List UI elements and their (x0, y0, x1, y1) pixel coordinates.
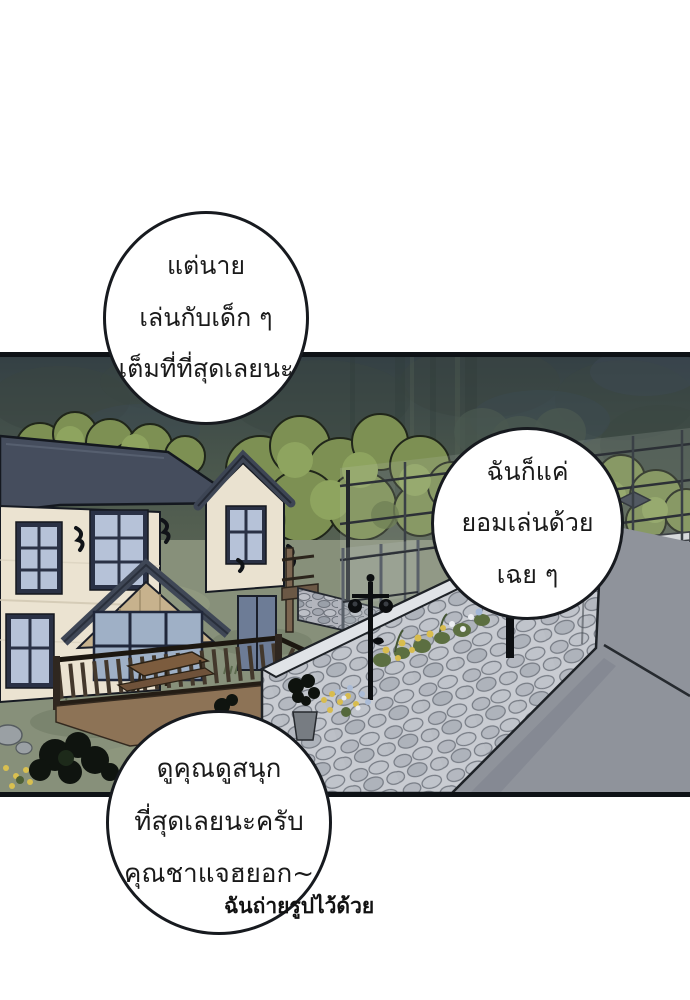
panel-border-bottom (0, 792, 690, 797)
bubble-line: คุณชาแจฮยอก~ (124, 858, 314, 892)
bubble-line: ฉันก็แค่ (486, 456, 568, 489)
bubble-line: เล่นกับเด็ก ๆ (139, 302, 272, 335)
bubble-line: ยอมเล่นด้วย (461, 507, 593, 540)
speech-bubble-top-left: แต่นาย เล่นกับเด็ก ๆ เต็มที่ที่สุดเลยนะ (103, 211, 309, 425)
panel-border-top (0, 352, 690, 357)
bubble-line: ที่สุดเลยนะครับ (134, 806, 304, 840)
comic-page: แต่นาย เล่นกับเด็ก ๆ เต็มที่ที่สุดเลยนะ … (0, 0, 690, 1000)
bubble-line: แต่นาย (167, 250, 245, 283)
bubble-line: เต็มที่ที่สุดเลยนะ (119, 353, 294, 386)
speech-bubble-right: ฉันก็แค่ ยอมเล่นด้วย เฉย ๆ (431, 427, 624, 620)
bubble-line: ดูคุณดูสนุก (157, 753, 282, 787)
caption-text: ฉันถ่ายรูปไว้ด้วย (224, 893, 374, 920)
bubble-line: เฉย ๆ (497, 559, 559, 592)
